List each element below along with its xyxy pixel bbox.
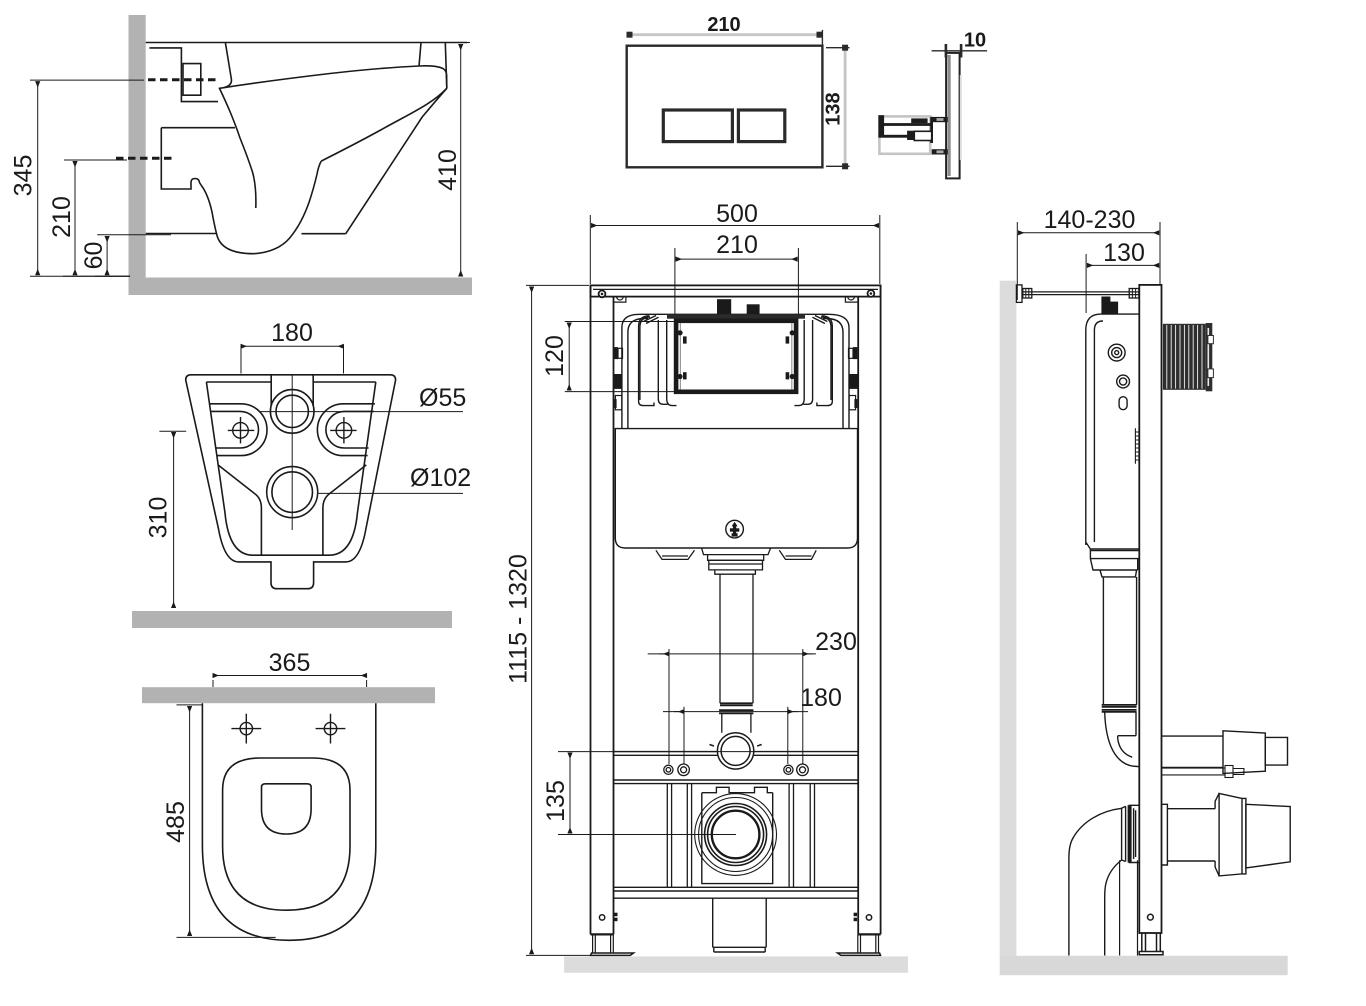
- svg-text:310: 310: [145, 497, 173, 539]
- svg-text:485: 485: [162, 801, 190, 843]
- svg-text:345: 345: [10, 155, 38, 197]
- svg-text:Ø55: Ø55: [419, 384, 466, 412]
- svg-text:135: 135: [542, 780, 570, 822]
- svg-text:60: 60: [80, 242, 108, 270]
- svg-text:180: 180: [800, 684, 842, 712]
- svg-text:500: 500: [716, 200, 758, 228]
- svg-text:1115 - 1320: 1115 - 1320: [505, 554, 533, 684]
- svg-text:210: 210: [716, 231, 758, 259]
- svg-text:180: 180: [271, 319, 313, 347]
- svg-text:410: 410: [434, 149, 462, 191]
- svg-text:365: 365: [269, 649, 311, 677]
- svg-text:210: 210: [48, 196, 76, 238]
- svg-text:138: 138: [823, 92, 845, 125]
- svg-text:140-230: 140-230: [1044, 206, 1136, 234]
- svg-text:230: 230: [815, 628, 857, 656]
- svg-text:130: 130: [1103, 239, 1145, 267]
- svg-text:120: 120: [541, 335, 569, 377]
- svg-text:Ø102: Ø102: [410, 464, 471, 492]
- svg-text:10: 10: [964, 30, 986, 52]
- svg-text:210: 210: [707, 14, 740, 36]
